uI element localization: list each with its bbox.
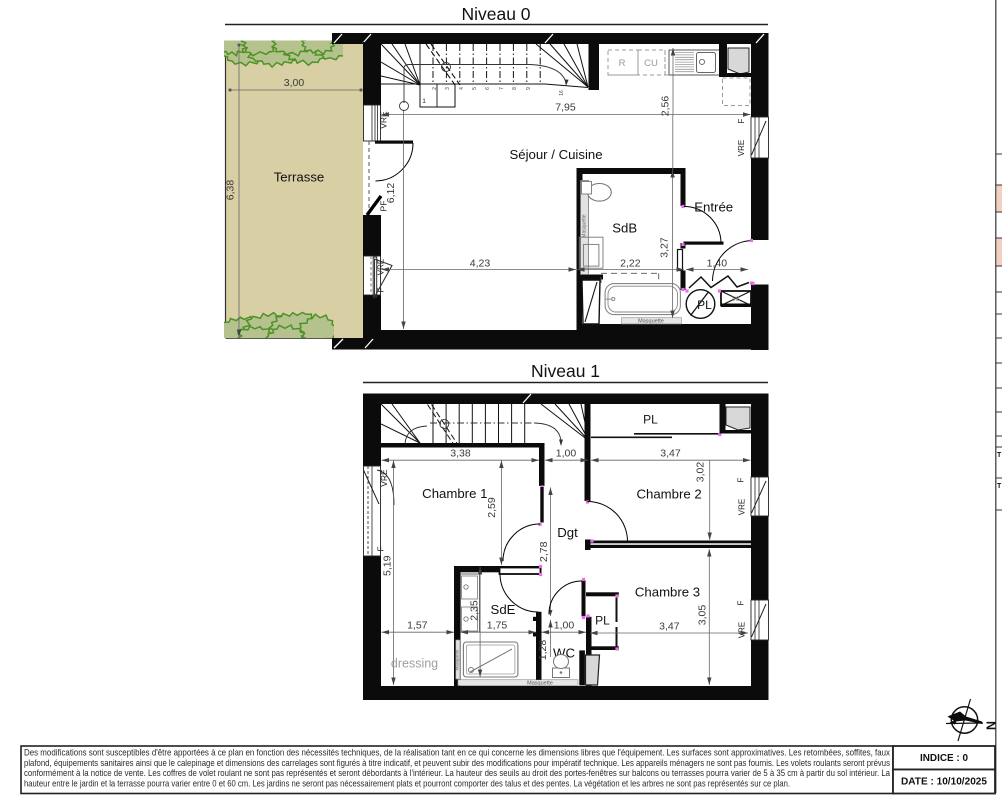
svg-text:1,28: 1,28: [537, 640, 549, 661]
svg-text:Chambre 3: Chambre 3: [635, 585, 700, 600]
svg-text:4: 4: [459, 87, 465, 90]
svg-text:F: F: [377, 287, 386, 292]
svg-text:3,47: 3,47: [659, 621, 680, 633]
svg-text:2,35: 2,35: [468, 600, 480, 621]
svg-text:SdE: SdE: [491, 602, 516, 617]
svg-text:N: N: [984, 721, 998, 730]
svg-text:3,38: 3,38: [450, 448, 471, 460]
svg-text:T: T: [997, 483, 1002, 490]
svg-text:plafond, équipements sanitaire: plafond, équipements sanitaires ainsi qu…: [24, 758, 890, 768]
svg-text:7: 7: [499, 87, 505, 90]
svg-text:2,56: 2,56: [660, 96, 672, 117]
svg-text:T: T: [997, 452, 1002, 459]
svg-text:9: 9: [526, 87, 532, 90]
svg-text:1,57: 1,57: [407, 620, 428, 632]
svg-text:16: 16: [559, 90, 565, 96]
svg-text:2,78: 2,78: [538, 541, 550, 562]
svg-text:hauteur entre le jardin et la: hauteur entre le jardin et la terrasse p…: [24, 778, 790, 788]
svg-text:DATE : 10/10/2025: DATE : 10/10/2025: [901, 776, 987, 788]
svg-text:2: 2: [432, 87, 438, 90]
svg-text:SdB: SdB: [612, 221, 637, 236]
svg-text:VRE: VRE: [737, 140, 746, 156]
svg-text:5,19: 5,19: [382, 555, 394, 576]
svg-text:3,05: 3,05: [697, 605, 709, 626]
svg-text:VRE: VRE: [379, 469, 389, 487]
svg-text:2,59: 2,59: [486, 497, 498, 518]
svg-text:3,00: 3,00: [284, 77, 305, 89]
svg-text:1,00: 1,00: [554, 620, 575, 632]
svg-text:1: 1: [422, 98, 426, 105]
svg-text:1,75: 1,75: [487, 620, 508, 632]
svg-text:Des modifications sont suscept: Des modifications sont susceptibles d'êt…: [24, 748, 890, 758]
svg-text:VRE: VRE: [738, 622, 747, 638]
svg-text:Entrée: Entrée: [694, 200, 733, 215]
svg-text:conformément à la notice de ve: conformément à la notice de vente. Les c…: [24, 768, 891, 778]
svg-text:8: 8: [512, 87, 518, 90]
svg-text:PL: PL: [697, 298, 712, 312]
svg-text:VRE: VRE: [377, 259, 386, 275]
svg-text:Terrasse: Terrasse: [274, 170, 325, 185]
svg-text:PL: PL: [643, 413, 658, 427]
svg-text:7,95: 7,95: [555, 102, 576, 114]
svg-text:F: F: [737, 118, 746, 123]
svg-text:VRE: VRE: [738, 499, 747, 515]
svg-text:dressing: dressing: [391, 657, 438, 671]
svg-text:Niveau 1: Niveau 1: [531, 361, 600, 381]
svg-text:Niveau 0: Niveau 0: [461, 4, 530, 24]
svg-text:Chambre 2: Chambre 2: [636, 487, 701, 502]
svg-text:3: 3: [445, 87, 451, 90]
svg-text:Dgt: Dgt: [557, 525, 578, 540]
svg-text:F: F: [737, 600, 746, 605]
svg-text:Masquette: Masquette: [527, 680, 553, 686]
svg-text:2,22: 2,22: [620, 258, 641, 270]
svg-text:3,02: 3,02: [694, 462, 706, 483]
svg-text:5: 5: [472, 87, 478, 90]
svg-text:1,00: 1,00: [556, 448, 577, 460]
svg-text:Séjour / Cuisine: Séjour / Cuisine: [509, 147, 602, 162]
svg-text:Masquette: Masquette: [638, 319, 664, 325]
svg-text:PL: PL: [595, 614, 610, 628]
svg-text:CU: CU: [644, 58, 658, 69]
svg-text:3,27: 3,27: [659, 237, 671, 258]
svg-text:F: F: [377, 546, 386, 551]
svg-text:VB: VB: [732, 297, 740, 303]
svg-text:INDICE : 0: INDICE : 0: [920, 752, 968, 764]
svg-text:Masquette: Masquette: [454, 649, 459, 671]
svg-text:4,23: 4,23: [470, 258, 491, 270]
svg-text:F: F: [737, 477, 746, 482]
svg-text:Masquette: Masquette: [582, 214, 588, 238]
svg-text:6: 6: [485, 87, 491, 90]
svg-text:R: R: [619, 58, 626, 69]
svg-text:Chambre 1: Chambre 1: [422, 486, 487, 501]
svg-text:3,47: 3,47: [660, 448, 681, 460]
svg-text:6,38: 6,38: [225, 180, 237, 201]
svg-text:6,12: 6,12: [385, 183, 397, 204]
